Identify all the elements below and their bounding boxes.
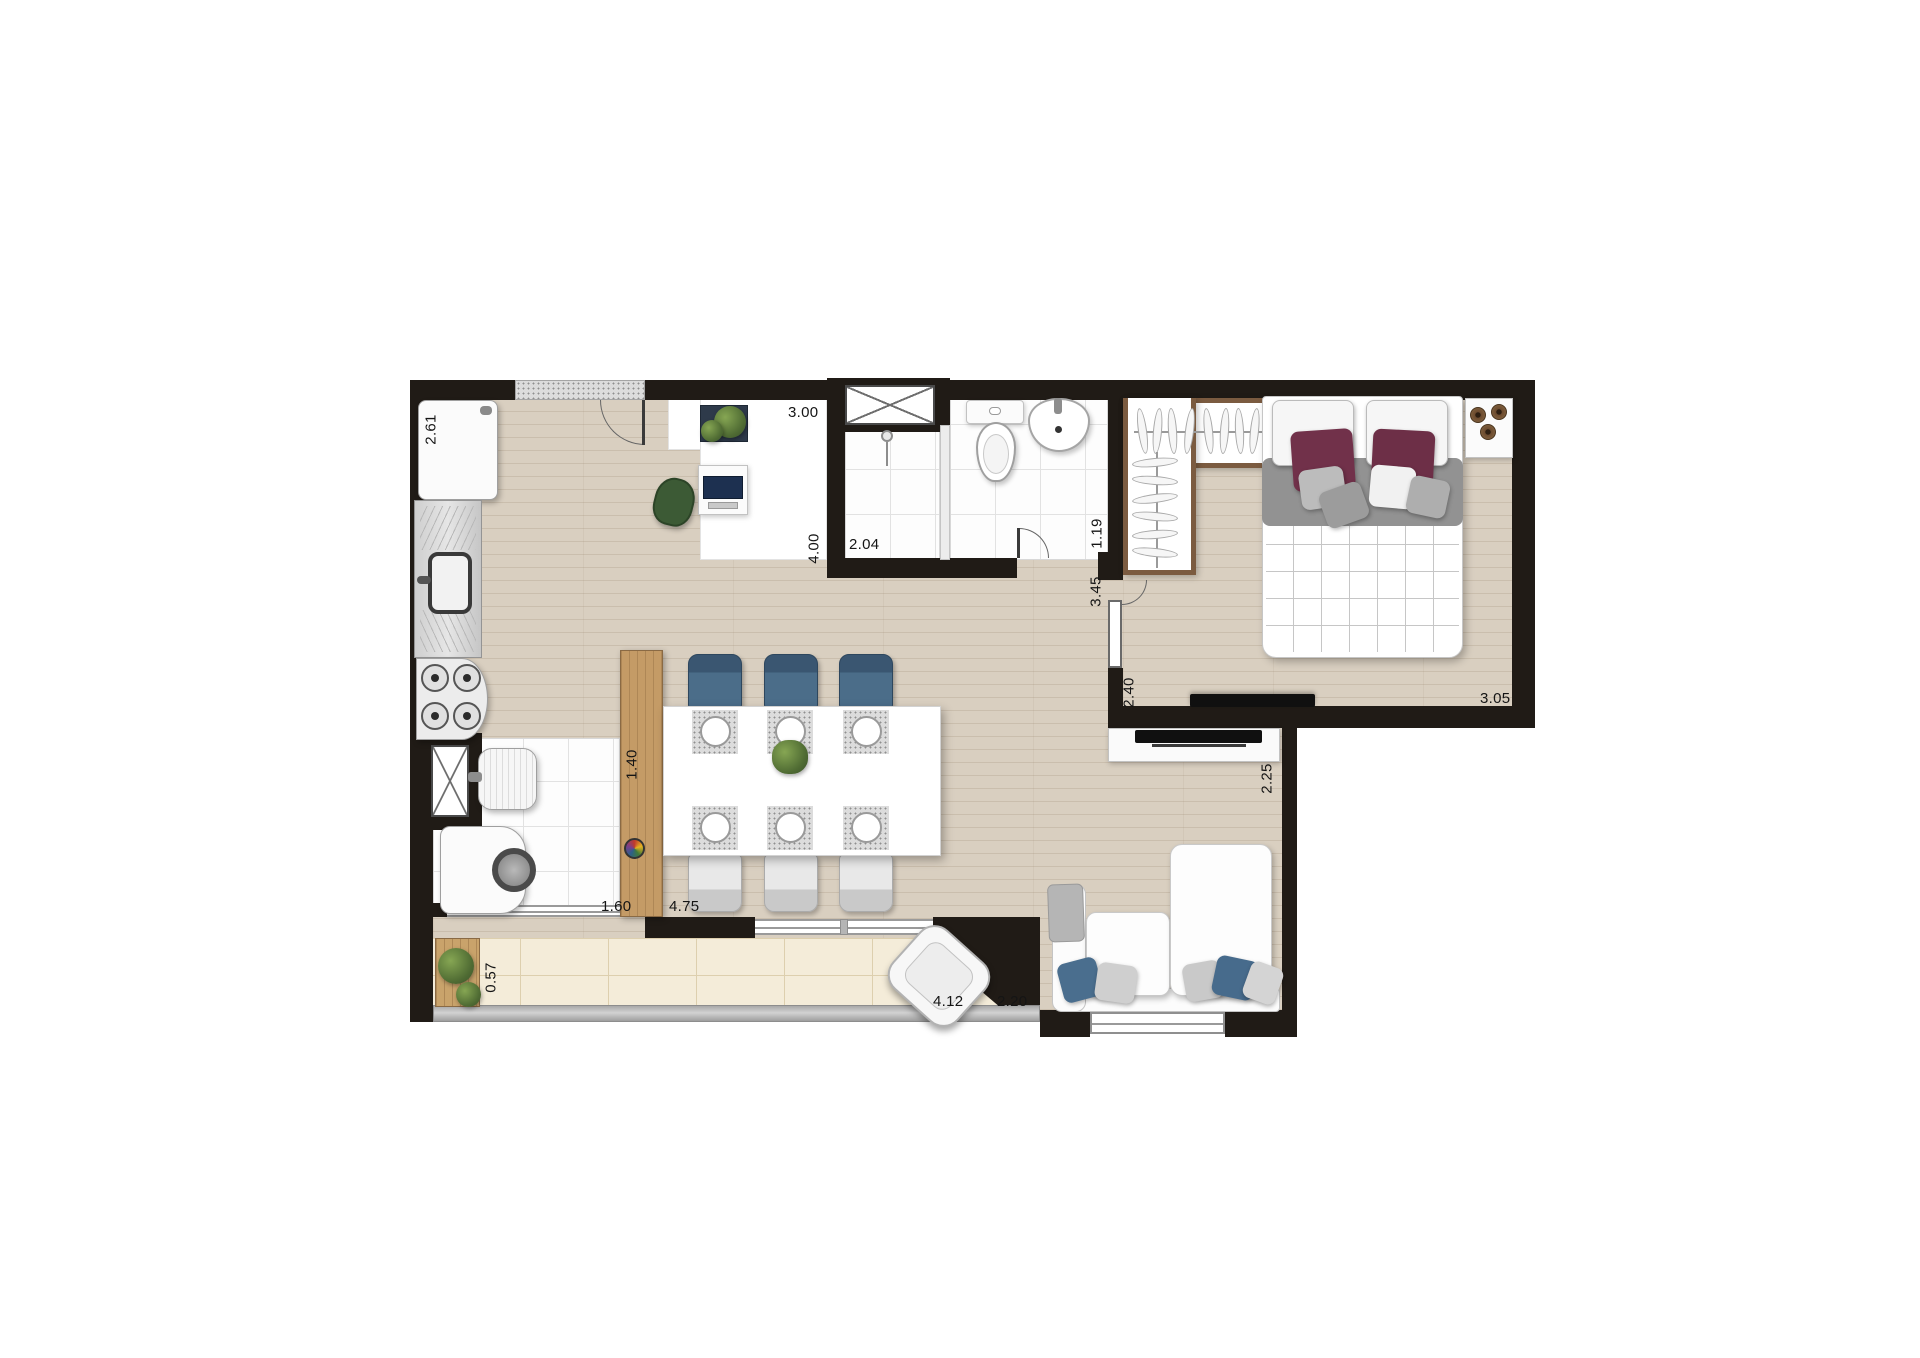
dining-chair-blue-1 [688, 654, 742, 710]
wall-bedroom-bottom [1108, 706, 1535, 728]
hall-plant-small [701, 420, 723, 442]
living-window [1090, 1012, 1225, 1034]
dim-entry-hall-length: 4.00 [806, 533, 823, 563]
stove-burner-4 [453, 702, 481, 730]
wall-nook-right [1282, 706, 1297, 1037]
dining-chair-gray-3 [839, 854, 893, 912]
decor-plate-2 [1491, 404, 1507, 420]
dim-counter-length: 1.40 [624, 749, 641, 779]
dim-shower-room: 2.04 [849, 536, 879, 553]
dim-laundry-width: 1.60 [601, 898, 631, 915]
wall-nook-bottom-right-pier [1225, 1010, 1297, 1037]
entry-doormat [515, 380, 645, 400]
bed-duvet-grid [1266, 520, 1459, 652]
shower-head [881, 430, 893, 442]
counter-drainboard-top [420, 506, 476, 550]
floor-plan: 2.61 3.00 4.00 2.04 1.19 3.45 2.40 3.05 … [0, 0, 1920, 1358]
counter-decor-bowl [624, 838, 645, 859]
wall-balcony-left-segment [645, 917, 755, 938]
bath-sink-faucet [1054, 398, 1062, 414]
stove-burner-3 [421, 702, 449, 730]
shower-arm [886, 442, 888, 466]
water-heater [478, 748, 537, 810]
wall-bathroom-right [1108, 380, 1123, 560]
plate [851, 716, 882, 747]
decor-plate-1 [1470, 407, 1486, 423]
sofa-throw-gray [1047, 883, 1085, 942]
balcony-plant-large [438, 948, 474, 984]
wall-bathroom-bottom [827, 558, 1017, 578]
dim-bedroom-width: 3.05 [1480, 690, 1510, 707]
wall-partition-light [1108, 600, 1122, 668]
dining-chair-gray-2 [764, 854, 818, 912]
living-tv-base [1152, 744, 1246, 747]
dining-chair-blue-3 [839, 654, 893, 710]
counter-drainboard-bottom [420, 610, 476, 652]
dining-chair-blue-2 [764, 654, 818, 710]
toilet-bowl-inner [983, 434, 1009, 474]
fridge-handle [480, 406, 492, 415]
wall-nook-bottom-left-pier [1040, 1010, 1090, 1037]
desk-monitor [703, 476, 743, 499]
wall-bedroom-right [1512, 380, 1535, 728]
dim-balcony-depth: 0.57 [483, 962, 500, 992]
kitchen-faucet [417, 576, 431, 584]
shower-divider [940, 425, 950, 560]
sofa-pillow-gray-1 [1094, 961, 1139, 1004]
balcony-plant-small [456, 982, 481, 1007]
dim-balcony-length: 4.12 [933, 993, 963, 1010]
table-centerpiece-plant [772, 740, 808, 774]
bed-cushion-gray-3 [1404, 474, 1451, 519]
plate [700, 812, 731, 843]
living-tv [1135, 730, 1262, 743]
dim-living-width: 4.75 [669, 898, 699, 915]
bedroom-tv [1190, 694, 1315, 707]
plate [851, 812, 882, 843]
plate [700, 716, 731, 747]
entry-shaft-duct [845, 385, 935, 425]
desk-keyboard [708, 502, 738, 509]
dim-living-length: 3.45 [1088, 576, 1105, 606]
balcony-sliding-door-mullion [840, 919, 848, 935]
water-heater-valve [468, 772, 482, 782]
laundry-shaft-duct [431, 745, 469, 817]
toilet-button [989, 407, 1001, 415]
dim-sofa-window-wall: 2.20 [997, 993, 1027, 1010]
dim-tv-side-wall: 2.25 [1259, 763, 1276, 793]
kitchen-sink-basin [428, 552, 472, 614]
washer-drum [492, 848, 536, 892]
decor-plate-3 [1480, 424, 1496, 440]
bath-sink-drain [1055, 426, 1062, 433]
dim-entry-hall-width: 3.00 [788, 404, 818, 421]
stove-burner-2 [453, 664, 481, 692]
dim-bathroom-length: 1.19 [1089, 518, 1106, 548]
counter-plank [620, 650, 663, 917]
dim-kitchen-width: 2.61 [423, 414, 440, 444]
stove-burner-1 [421, 664, 449, 692]
bathroom-door-leaf [1017, 528, 1020, 558]
plate [775, 812, 806, 843]
entry-door-leaf [642, 400, 645, 445]
dim-bedroom-tv-wall: 2.40 [1121, 677, 1138, 707]
